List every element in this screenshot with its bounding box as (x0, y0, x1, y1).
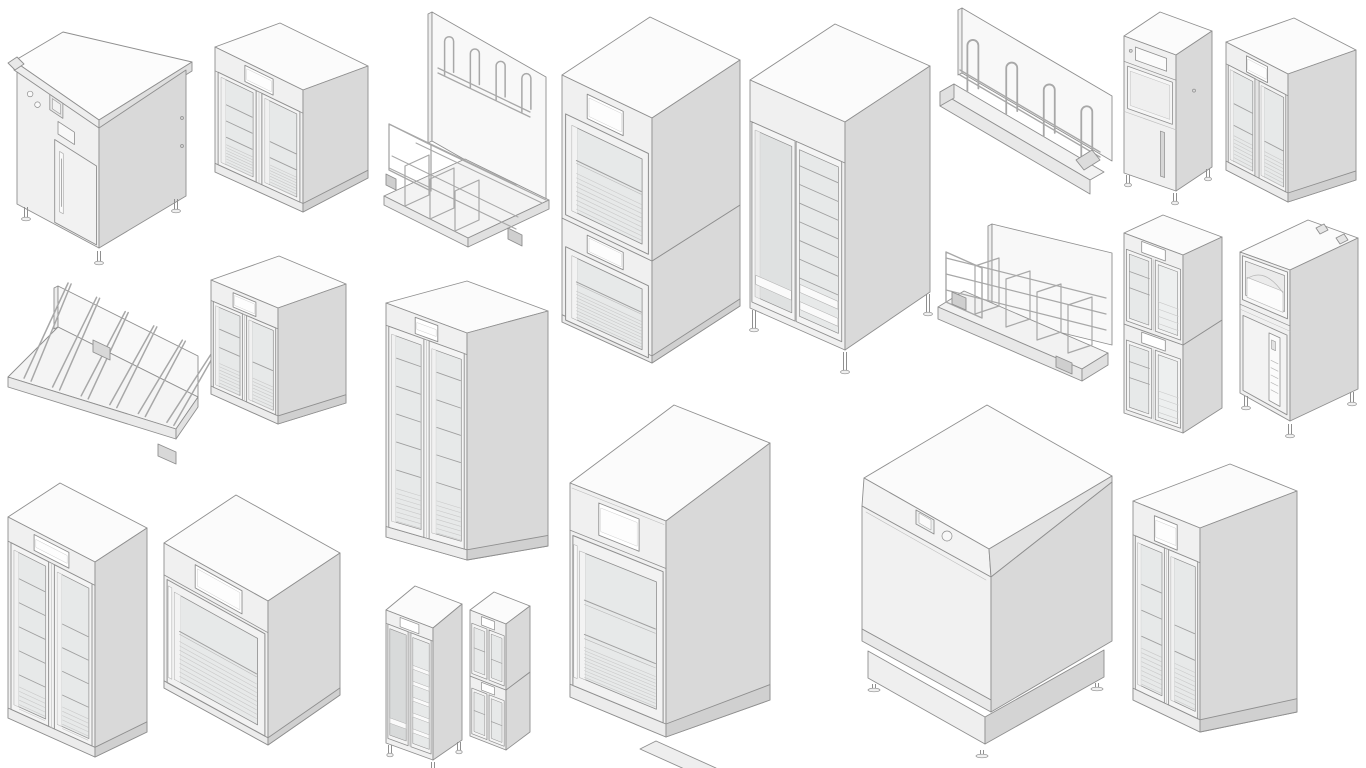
appliance-cooler15 (8, 483, 147, 757)
appliance-cooler8 (1226, 18, 1356, 202)
appliance-cooler21 (1133, 464, 1297, 732)
appliance-stack18 (470, 592, 530, 750)
scene-svg (0, 0, 1366, 768)
appliance-dish20 (862, 405, 1112, 758)
appliance-cab17 (386, 586, 462, 768)
appliance-cooler11 (386, 281, 548, 560)
appliance-stack13 (1124, 215, 1222, 433)
appliance-rack3 (384, 12, 549, 247)
appliance-stack4 (562, 17, 740, 363)
appliance-rack12 (938, 224, 1112, 381)
appliance-machine7 (1124, 12, 1212, 205)
appliance-warm16 (164, 495, 340, 745)
appliance-banquet5 (750, 24, 933, 374)
appliance-cooler2 (215, 23, 368, 212)
appliance-rack6 (940, 8, 1112, 194)
render-canvas (0, 0, 1366, 768)
appliance-cooler10 (211, 256, 346, 424)
appliance-warm19 (570, 405, 770, 768)
appliance-machine14 (1240, 220, 1358, 438)
appliance-rack9 (8, 283, 214, 464)
appliance-washer1 (8, 32, 192, 265)
